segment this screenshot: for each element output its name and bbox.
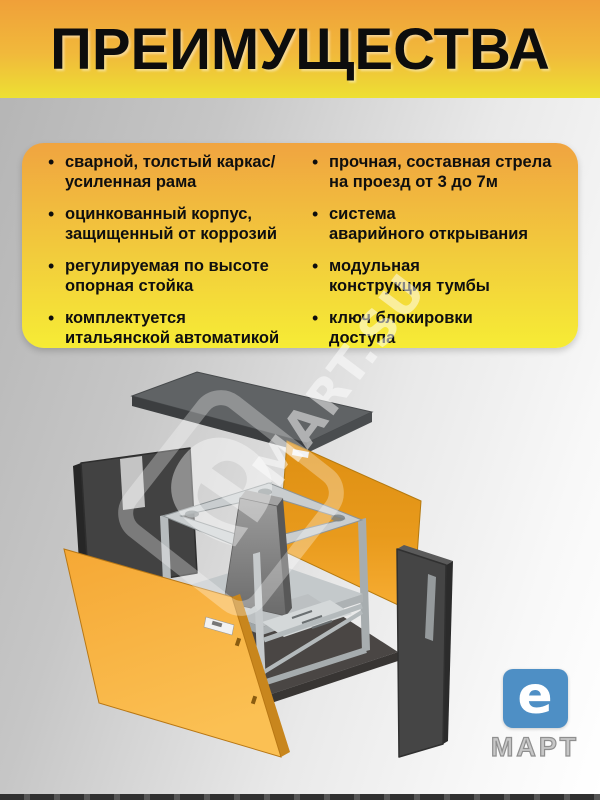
back-panel-orange [279, 441, 421, 612]
advantage-text: ключ блокировки доступа [329, 309, 558, 348]
watermark-logo-outline [106, 378, 356, 628]
bottom-film-strip [0, 794, 600, 800]
advantage-item: сварной, толстый каркас/ усиленная рама [48, 153, 300, 192]
motor-unit [224, 490, 352, 637]
advantage-item: прочная, составная стрела на проезд от 3… [312, 153, 558, 192]
bullet-dot-icon [48, 308, 54, 329]
right-door-panel [397, 545, 453, 757]
bullet-dot-icon [312, 152, 318, 173]
emart-logo-icon: e [503, 669, 568, 728]
bullet-dot-icon [48, 152, 54, 173]
advantages-column-left: сварной, толстый каркас/ усиленная рама … [48, 153, 306, 340]
watermark-e-glyph: е [109, 362, 343, 601]
base-plate [152, 594, 398, 712]
left-side-panel [73, 448, 197, 594]
advantage-item: оцинкованный корпус, защищенный от корро… [48, 205, 300, 244]
emart-logo: e МАРТ [480, 669, 590, 763]
header-banner: ПРЕИМУЩЕСТВА [0, 0, 600, 98]
front-panel-orange [64, 549, 290, 757]
poster: ПРЕИМУЩЕСТВА сварной, толстый каркас/ ус… [0, 0, 600, 800]
bullet-dot-icon [312, 308, 318, 329]
bullet-dot-icon [312, 256, 318, 277]
advantage-item: модульная конструкция тумбы [312, 257, 558, 296]
page-title: ПРЕИМУЩЕСТВА [50, 16, 550, 83]
advantage-text: система аварийного открывания [329, 205, 558, 244]
bullet-dot-icon [48, 204, 54, 225]
advantage-item: регулируемая по высоте опорная стойка [48, 257, 300, 296]
advantage-text: сварной, толстый каркас/ усиленная рама [65, 153, 300, 192]
emart-logo-name: МАРТ [480, 732, 590, 763]
advantage-text: регулируемая по высоте опорная стойка [65, 257, 300, 296]
top-cover-panel [132, 372, 372, 453]
advantage-text: модульная конструкция тумбы [329, 257, 558, 296]
steel-frame-front [166, 552, 366, 688]
advantage-item: система аварийного открывания [312, 205, 558, 244]
advantage-text: прочная, составная стрела на проезд от 3… [329, 153, 558, 192]
advantage-item: ключ блокировки доступа [312, 309, 558, 348]
advantage-item: комплектуется итальянской автоматикой [48, 309, 300, 348]
advantage-text: комплектуется итальянской автоматикой [65, 309, 300, 348]
bullet-dot-icon [48, 256, 54, 277]
emart-logo-letter: e [517, 670, 552, 722]
steel-frame [160, 482, 370, 652]
advantages-card: сварной, толстый каркас/ усиленная рама … [22, 143, 578, 348]
advantages-column-right: прочная, составная стрела на проезд от 3… [306, 153, 564, 340]
advantage-text: оцинкованный корпус, защищенный от корро… [65, 205, 300, 244]
bullet-dot-icon [312, 204, 318, 225]
